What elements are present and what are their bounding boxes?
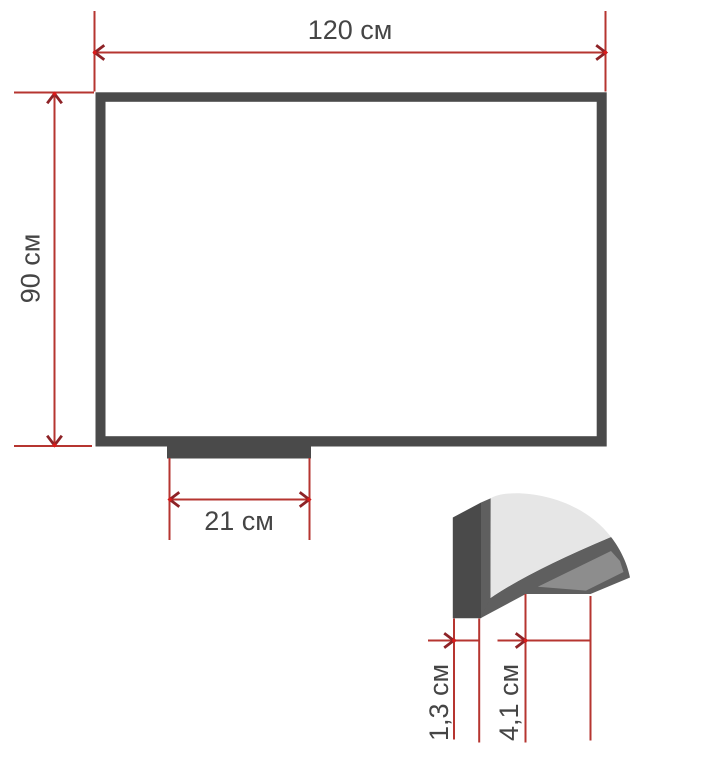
svg-text:120 см: 120 см bbox=[308, 15, 393, 45]
svg-text:4,1 см: 4,1 см bbox=[494, 664, 524, 741]
svg-text:1,3 см: 1,3 см bbox=[424, 664, 454, 741]
svg-text:90 см: 90 см bbox=[15, 234, 45, 304]
svg-text:21 см: 21 см bbox=[204, 506, 274, 536]
